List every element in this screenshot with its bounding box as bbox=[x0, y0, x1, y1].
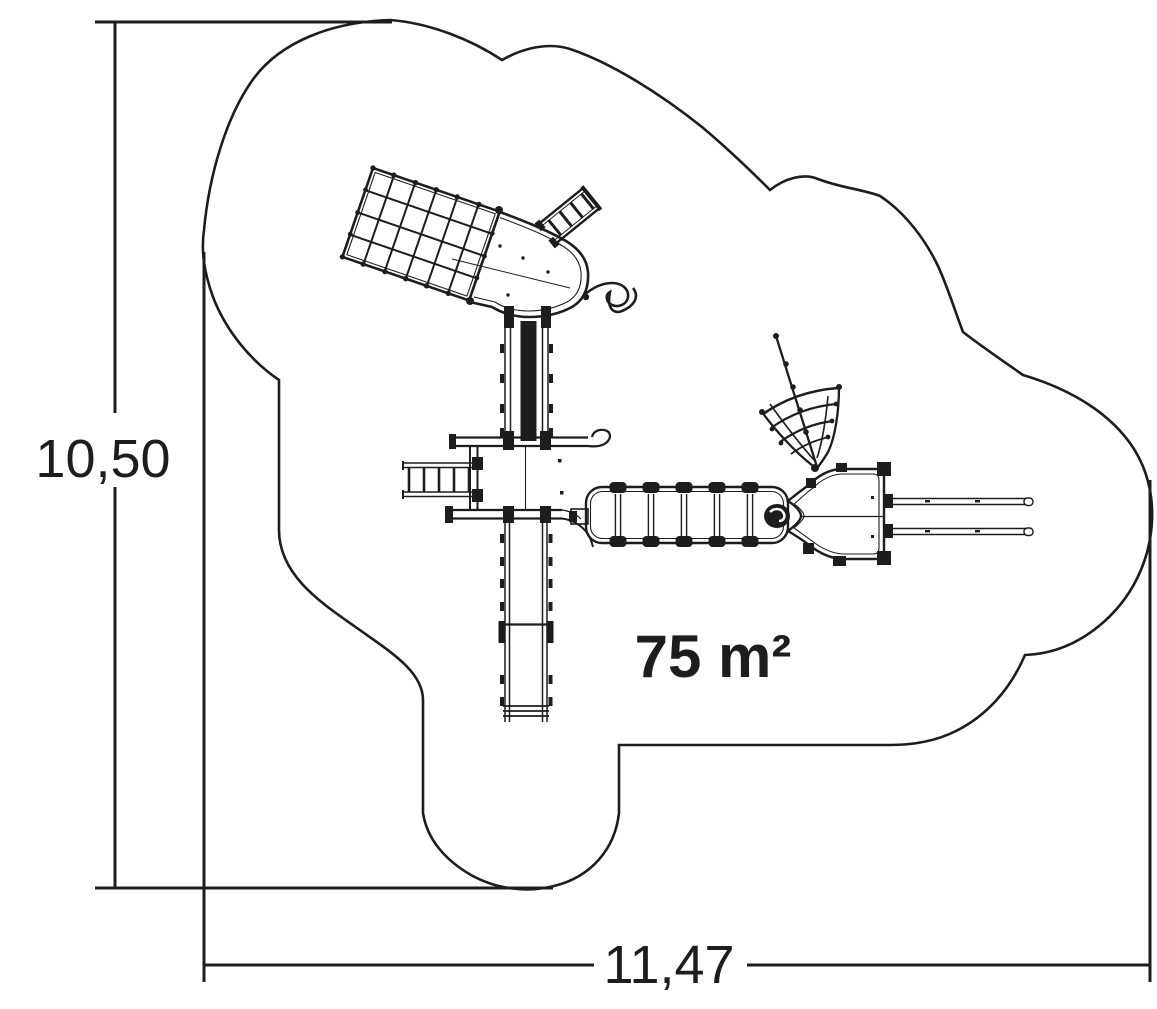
playground-plan-drawing: 10,50 11,47 75 m² bbox=[0, 0, 1157, 1009]
spiral-handle bbox=[583, 283, 636, 312]
access-ladder bbox=[535, 186, 602, 249]
upper-slide bbox=[500, 306, 553, 444]
handle-hook bbox=[588, 430, 610, 447]
clatter-bridge bbox=[569, 482, 790, 547]
parallel-bars bbox=[884, 494, 1033, 538]
lower-slide bbox=[499, 519, 554, 722]
width-dimension-label: 11,47 bbox=[603, 935, 734, 995]
safety-zone-outline bbox=[203, 20, 1152, 889]
side-ladder bbox=[403, 461, 472, 499]
climbing-net bbox=[339, 165, 503, 304]
plan-canvas: 10,50 11,47 75 m² bbox=[0, 0, 1157, 1009]
area-label: 75 m² bbox=[635, 623, 792, 690]
grip-element bbox=[764, 504, 790, 528]
fan-climbing-net bbox=[759, 333, 842, 472]
dimension-height: 10,50 bbox=[35, 22, 553, 888]
lower-platform bbox=[788, 462, 891, 566]
height-dimension-label: 10,50 bbox=[35, 429, 170, 489]
